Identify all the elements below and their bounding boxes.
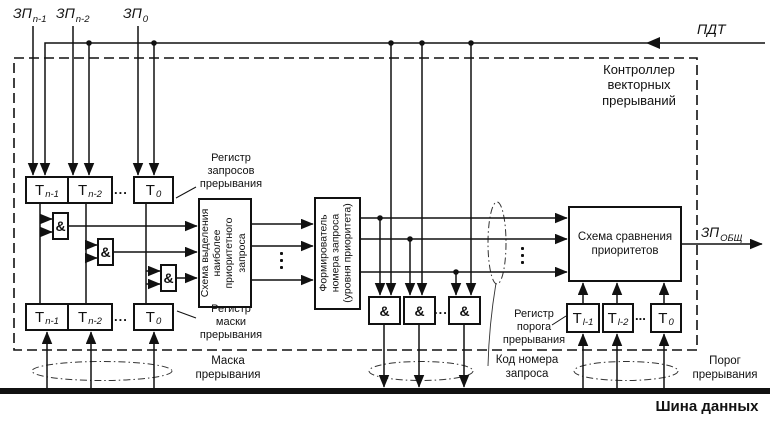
bit-sub: l-1 xyxy=(583,317,594,328)
bit-sub: n-1 xyxy=(45,189,59,200)
bit-base: Т xyxy=(608,310,617,327)
and-gate-4: & xyxy=(368,296,401,325)
number-former-line2: номера запроса xyxy=(330,200,342,307)
bit-sub: n-2 xyxy=(88,189,102,200)
request-register-label: Регистр запросов прерывания xyxy=(190,152,272,191)
pdt-label: ПДТ xyxy=(697,21,726,38)
mask-annotation-line1: Маска xyxy=(184,355,272,369)
threshold-register-bit-l2: Тl-2 xyxy=(602,303,634,333)
bit-base: Т xyxy=(35,182,44,199)
request-register-bit-n2: Тn-2 xyxy=(67,176,113,204)
bit-sub: l-2 xyxy=(618,317,629,328)
request-code-line1: Код номера xyxy=(488,354,566,368)
number-former-line3: (уровня приоритета) xyxy=(342,200,354,307)
and-symbol: & xyxy=(379,303,389,319)
controller-title-line3: прерываний xyxy=(583,93,695,108)
and-symbol: & xyxy=(55,218,65,234)
zp-0-base: ЗП xyxy=(123,5,142,21)
threshold-annotation-line1: Порог xyxy=(684,355,766,369)
threshold-register-bit-l1: Тl-1 xyxy=(566,303,600,333)
zp-n2-sub: n-2 xyxy=(76,14,90,25)
vertical-dots-icon xyxy=(521,247,524,264)
output-gates-ellipsis: ... xyxy=(434,302,448,317)
number-former-line1: Формирователь xyxy=(318,200,330,307)
and-gate-3: & xyxy=(160,264,177,292)
vertical-dots-icon xyxy=(280,252,283,269)
threshold-register-ellipsis: ... xyxy=(635,308,646,323)
request-register-label-line1: Регистр xyxy=(190,152,272,165)
mask-register-bit-n2: Тn-2 xyxy=(67,303,113,331)
bit-base: Т xyxy=(573,310,582,327)
and-gate-2: & xyxy=(97,238,114,266)
threshold-bus-ellipse xyxy=(574,362,678,381)
bit-sub: 0 xyxy=(668,317,673,328)
mask-register-bit-n1: Тn-1 xyxy=(25,303,69,331)
request-register-bit-0: Т0 xyxy=(133,176,174,204)
priority-selector-line4: запроса xyxy=(236,200,248,306)
and-symbol: & xyxy=(163,270,173,286)
controller-title: Контроллер векторных прерываний xyxy=(583,62,695,108)
request-code-line2: запроса xyxy=(488,368,566,382)
mask-register-bit-0: Т0 xyxy=(133,303,174,331)
and-gate-5: & xyxy=(403,296,436,325)
threshold-annotation: Порог прерывания xyxy=(684,355,766,382)
bit-sub: 0 xyxy=(156,316,161,327)
threshold-register-label-line1: Регистр xyxy=(498,308,570,321)
threshold-register-label-line3: прерывания xyxy=(498,334,570,347)
number-former-text: Формирователь номера запроса (уровня при… xyxy=(318,200,358,307)
data-bus xyxy=(0,388,770,394)
and-symbol: & xyxy=(100,244,110,260)
zp-n1-label: ЗПn-1 xyxy=(13,5,46,22)
and-symbol: & xyxy=(459,303,469,319)
comparator-line2: приоритетов xyxy=(578,244,672,258)
threshold-register-label: Регистр порога прерывания xyxy=(498,308,570,347)
and-gate-6: & xyxy=(448,296,481,325)
zp-0-sub: 0 xyxy=(143,14,148,25)
controller-title-line2: векторных xyxy=(583,77,695,92)
bit-base: Т xyxy=(35,309,44,326)
priority-selector-text: Схема выделения наиболее приоритетного з… xyxy=(199,200,251,306)
and-symbol: & xyxy=(414,303,424,319)
request-register-bit-n1: Тn-1 xyxy=(25,176,69,204)
threshold-annotation-line2: прерывания xyxy=(684,369,766,383)
zp-common-base: ЗП xyxy=(701,225,719,240)
controller-title-line1: Контроллер xyxy=(583,62,695,77)
bit-base: Т xyxy=(146,182,155,199)
mask-register-label-line2: маски xyxy=(190,316,272,329)
mask-annotation-line2: прерывания xyxy=(184,369,272,383)
mask-register-ellipsis: ... xyxy=(114,309,128,324)
request-register-ellipsis: ... xyxy=(114,182,128,197)
priority-selector-line3: приоритетного xyxy=(223,200,235,306)
mask-register-label-line3: прерывания xyxy=(190,329,272,342)
bit-sub: 0 xyxy=(156,189,161,200)
comparator-text: Схема сравнения приоритетов xyxy=(578,230,672,259)
zp-n1-sub: n-1 xyxy=(33,14,47,25)
priority-selector-line2: наиболее xyxy=(211,200,223,306)
bit-sub: n-1 xyxy=(45,316,59,327)
mask-register-label: Регистр маски прерывания xyxy=(190,303,272,342)
request-register-label-line2: запросов xyxy=(190,165,272,178)
threshold-register-bit-0: Т0 xyxy=(650,303,682,333)
zp-0-label: ЗП0 xyxy=(123,5,148,22)
bit-sub: n-2 xyxy=(88,316,102,327)
bit-base: Т xyxy=(146,309,155,326)
request-register-label-line3: прерывания xyxy=(190,178,272,191)
request-code-annotation: Код номера запроса xyxy=(488,354,566,381)
vector-interrupt-controller-diagram: ЗПn-1 ЗПn-2 ЗП0 ПДТ Контроллер векторных… xyxy=(0,0,770,427)
mask-bus-ellipse xyxy=(32,362,172,381)
pdt-arrowhead xyxy=(646,37,660,49)
zp-n2-label: ЗПn-2 xyxy=(56,5,89,22)
comparator-line1: Схема сравнения xyxy=(578,230,672,244)
comparator-block: Схема сравнения приоритетов xyxy=(568,206,682,282)
priority-selector-line1: Схема выделения xyxy=(199,200,211,306)
zp-n2-base: ЗП xyxy=(56,5,75,21)
mask-annotation: Маска прерывания xyxy=(184,355,272,382)
zp-common-label: ЗПОБЩ xyxy=(701,225,742,241)
bit-base: Т xyxy=(78,182,87,199)
zp-common-sub: ОБЩ xyxy=(720,233,742,244)
data-bus-label: Шина данных xyxy=(648,398,766,416)
bit-base: Т xyxy=(78,309,87,326)
threshold-register-label-line2: порога xyxy=(498,321,570,334)
bit-base: Т xyxy=(658,310,667,327)
and-gate-1: & xyxy=(52,212,69,240)
zp-n1-base: ЗП xyxy=(13,5,32,21)
